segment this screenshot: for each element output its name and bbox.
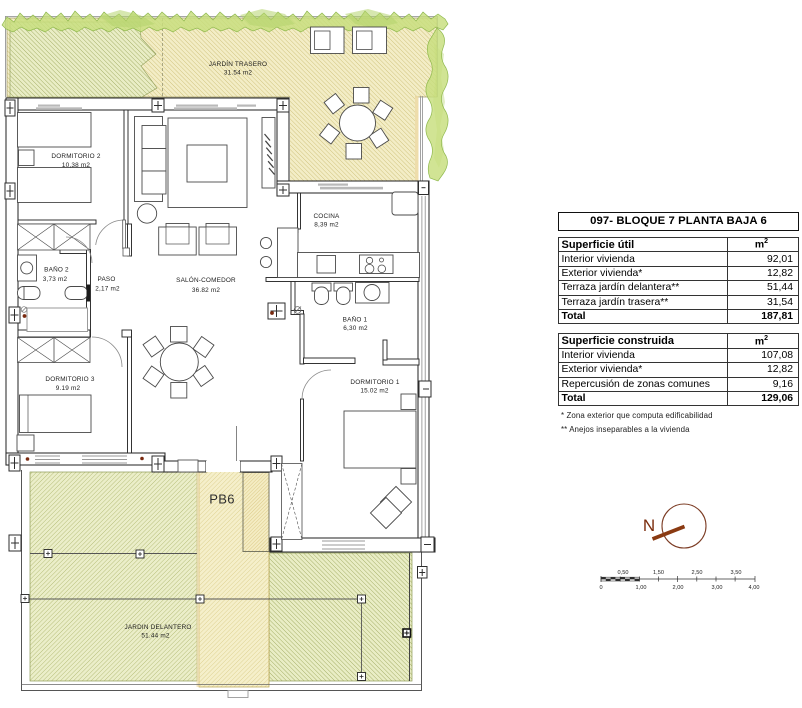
- svg-text:31.54 m2: 31.54 m2: [224, 70, 252, 77]
- svg-text:3,73 m2: 3,73 m2: [43, 276, 68, 283]
- svg-text:JARDIN DELANTERO: JARDIN DELANTERO: [124, 624, 191, 631]
- svg-text:51.44 m2: 51.44 m2: [141, 633, 169, 640]
- svg-text:SALÓN-COMEDOR: SALÓN-COMEDOR: [176, 275, 236, 284]
- svg-text:2,00: 2,00: [673, 585, 684, 591]
- svg-text:0: 0: [599, 585, 602, 591]
- svg-text:N: N: [643, 516, 655, 535]
- svg-text:3,00: 3,00: [712, 585, 723, 591]
- svg-text:JARDÍN TRASERO: JARDÍN TRASERO: [209, 59, 267, 68]
- svg-text:2,17 m2: 2,17 m2: [95, 286, 120, 293]
- svg-text:PB6: PB6: [209, 492, 234, 507]
- svg-text:DORMITORIO 3: DORMITORIO 3: [45, 376, 94, 383]
- svg-text:36.82 m2: 36.82 m2: [192, 287, 220, 294]
- svg-text:3,50: 3,50: [731, 570, 742, 576]
- svg-text:10,38 m2: 10,38 m2: [62, 162, 90, 169]
- svg-text:15.02 m2: 15.02 m2: [360, 388, 388, 395]
- svg-text:8,39 m2: 8,39 m2: [314, 222, 339, 229]
- svg-text:6,30 m2: 6,30 m2: [343, 325, 368, 332]
- svg-text:PASO: PASO: [97, 276, 115, 283]
- svg-text:BAÑO 2: BAÑO 2: [44, 265, 69, 274]
- svg-text:2,50: 2,50: [692, 570, 703, 576]
- svg-text:DORMITORIO 2: DORMITORIO 2: [51, 153, 100, 160]
- svg-text:4,00: 4,00: [749, 585, 760, 591]
- svg-text:BAÑO 1: BAÑO 1: [343, 315, 368, 324]
- svg-text:9.19 m2: 9.19 m2: [56, 385, 81, 392]
- svg-text:0,50: 0,50: [618, 570, 629, 576]
- svg-text:1,00: 1,00: [636, 585, 647, 591]
- svg-text:1,50: 1,50: [653, 570, 664, 576]
- svg-text:DORMITORIO 1: DORMITORIO 1: [350, 379, 399, 386]
- svg-text:COCINA: COCINA: [313, 213, 340, 220]
